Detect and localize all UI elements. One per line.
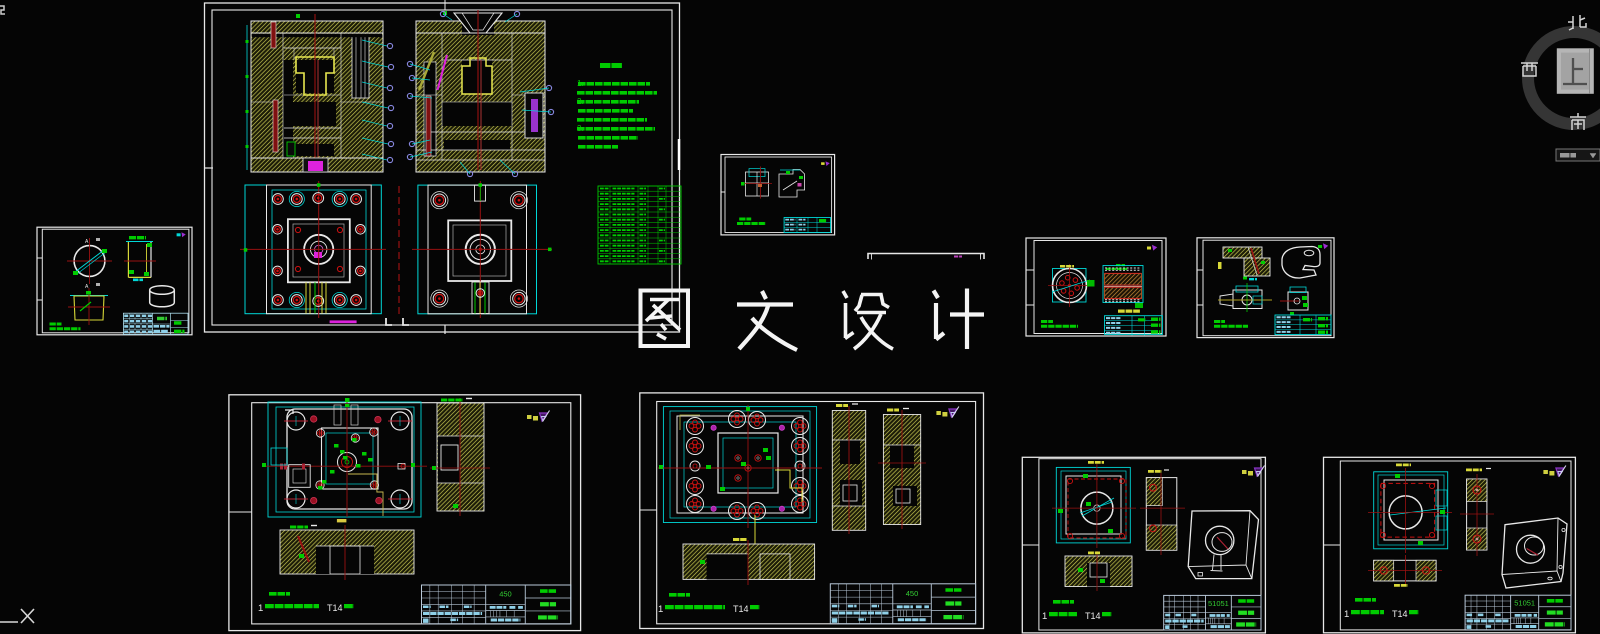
svg-text:51051: 51051 xyxy=(1208,599,1229,608)
svg-text:T14: T14 xyxy=(733,604,749,614)
svg-text:1: 1 xyxy=(258,603,263,614)
svg-text:T14: T14 xyxy=(1392,609,1408,619)
svg-text:2.: 2. xyxy=(577,97,584,106)
svg-text:1.: 1. xyxy=(577,79,584,88)
svg-text:1: 1 xyxy=(1344,609,1349,620)
svg-text:T14: T14 xyxy=(327,603,343,613)
svg-text:450: 450 xyxy=(906,589,919,598)
svg-text:T14: T14 xyxy=(1085,611,1101,621)
svg-text:1: 1 xyxy=(658,604,663,615)
svg-text:3.: 3. xyxy=(577,124,584,133)
svg-text:51051: 51051 xyxy=(1514,599,1535,608)
svg-text:450: 450 xyxy=(499,590,512,599)
svg-text:1: 1 xyxy=(1042,611,1047,622)
